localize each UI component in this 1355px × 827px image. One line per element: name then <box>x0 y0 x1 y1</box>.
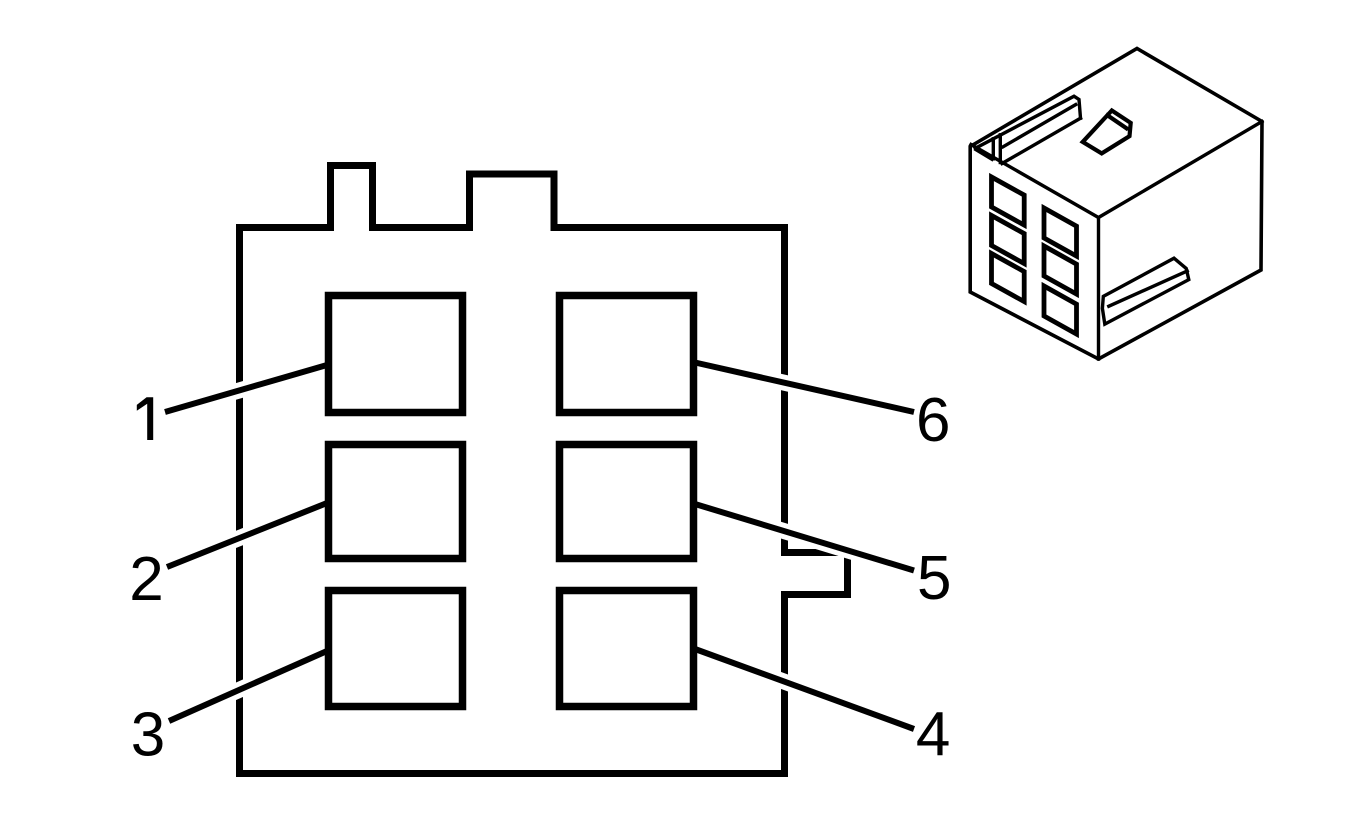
svg-text:2: 2 <box>129 545 163 614</box>
svg-text:3: 3 <box>131 701 165 770</box>
svg-text:4: 4 <box>916 700 950 769</box>
svg-text:5: 5 <box>917 544 951 613</box>
svg-text:6: 6 <box>916 386 950 455</box>
